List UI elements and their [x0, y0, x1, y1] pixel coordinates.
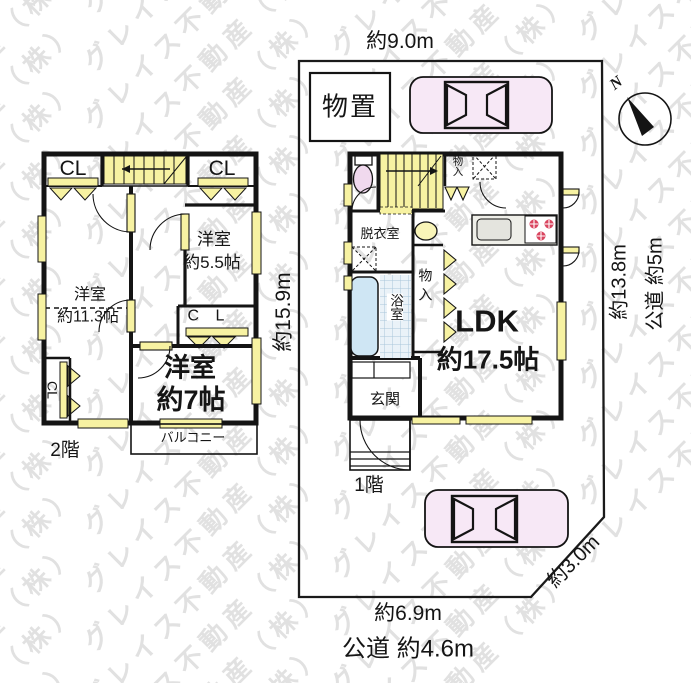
wash-basin	[415, 222, 437, 240]
entrance-porch	[350, 420, 410, 470]
shed-label: 物置	[322, 93, 378, 120]
washing-machine-space	[352, 247, 376, 271]
dim-bottom-width: 約6.9m	[374, 603, 442, 625]
ldk-side-doors	[563, 189, 579, 266]
car-top	[410, 77, 552, 133]
closet-label-2f-right: CL	[209, 158, 236, 180]
second-floor-plan	[38, 152, 261, 454]
room-large-size: 約11.3帖	[57, 310, 119, 327]
kitchen-sink	[477, 219, 511, 240]
bathroom-label: 浴室	[387, 294, 403, 321]
hall-door-arc	[480, 182, 506, 208]
dim-plan-depth: 約15.9m	[273, 272, 295, 351]
appliance-space	[473, 154, 496, 179]
ldk-size-label: 約17.5帖	[437, 346, 540, 373]
room-large-name: 洋室	[74, 288, 106, 305]
kitchen-counter	[472, 215, 557, 245]
closet-label-2f-mid: C L	[188, 309, 231, 326]
storage-top-label: 物入	[451, 156, 462, 177]
balcony-label: バルコニー	[161, 431, 226, 445]
floor1-label: 1階	[354, 476, 384, 496]
ldk-label: LDK	[455, 306, 519, 339]
room-main-size: 約7帖	[156, 386, 225, 414]
doors-2f	[93, 194, 189, 378]
closet-label-2f-side: CL	[45, 381, 60, 399]
room-small-name: 洋室	[197, 231, 231, 249]
floor2-label: 2階	[50, 441, 80, 461]
entrance-label: 玄関	[370, 392, 400, 408]
entrance-door-arc	[360, 420, 410, 470]
dressing-room-label: 脱衣室	[360, 227, 399, 241]
dim-right-road: 公道 約5m	[646, 237, 667, 330]
floorplan-image: グレイス不動産（株） グレイス不動産（株） グレイス不動産（株） グレイス不動産…	[0, 0, 691, 683]
bathtub	[351, 277, 378, 356]
toilet	[352, 156, 376, 211]
stairs-1f	[380, 154, 443, 209]
closet-label-2f-left: CL	[60, 158, 87, 180]
storage-mid-label: 物入	[418, 268, 433, 306]
dim-top-width: 約9.0m	[366, 31, 434, 53]
room-small-size: 約5.5帖	[183, 254, 241, 272]
compass-needle	[627, 97, 654, 136]
dim-right-depth: 約13.8m	[610, 244, 631, 320]
stairs-2f	[104, 156, 186, 184]
room-main-name: 洋室	[164, 354, 216, 381]
car-bottom	[425, 490, 568, 547]
sliding-door	[380, 207, 412, 214]
compass	[619, 93, 671, 145]
dim-bottom-road: 公道 約4.6m	[342, 636, 474, 661]
